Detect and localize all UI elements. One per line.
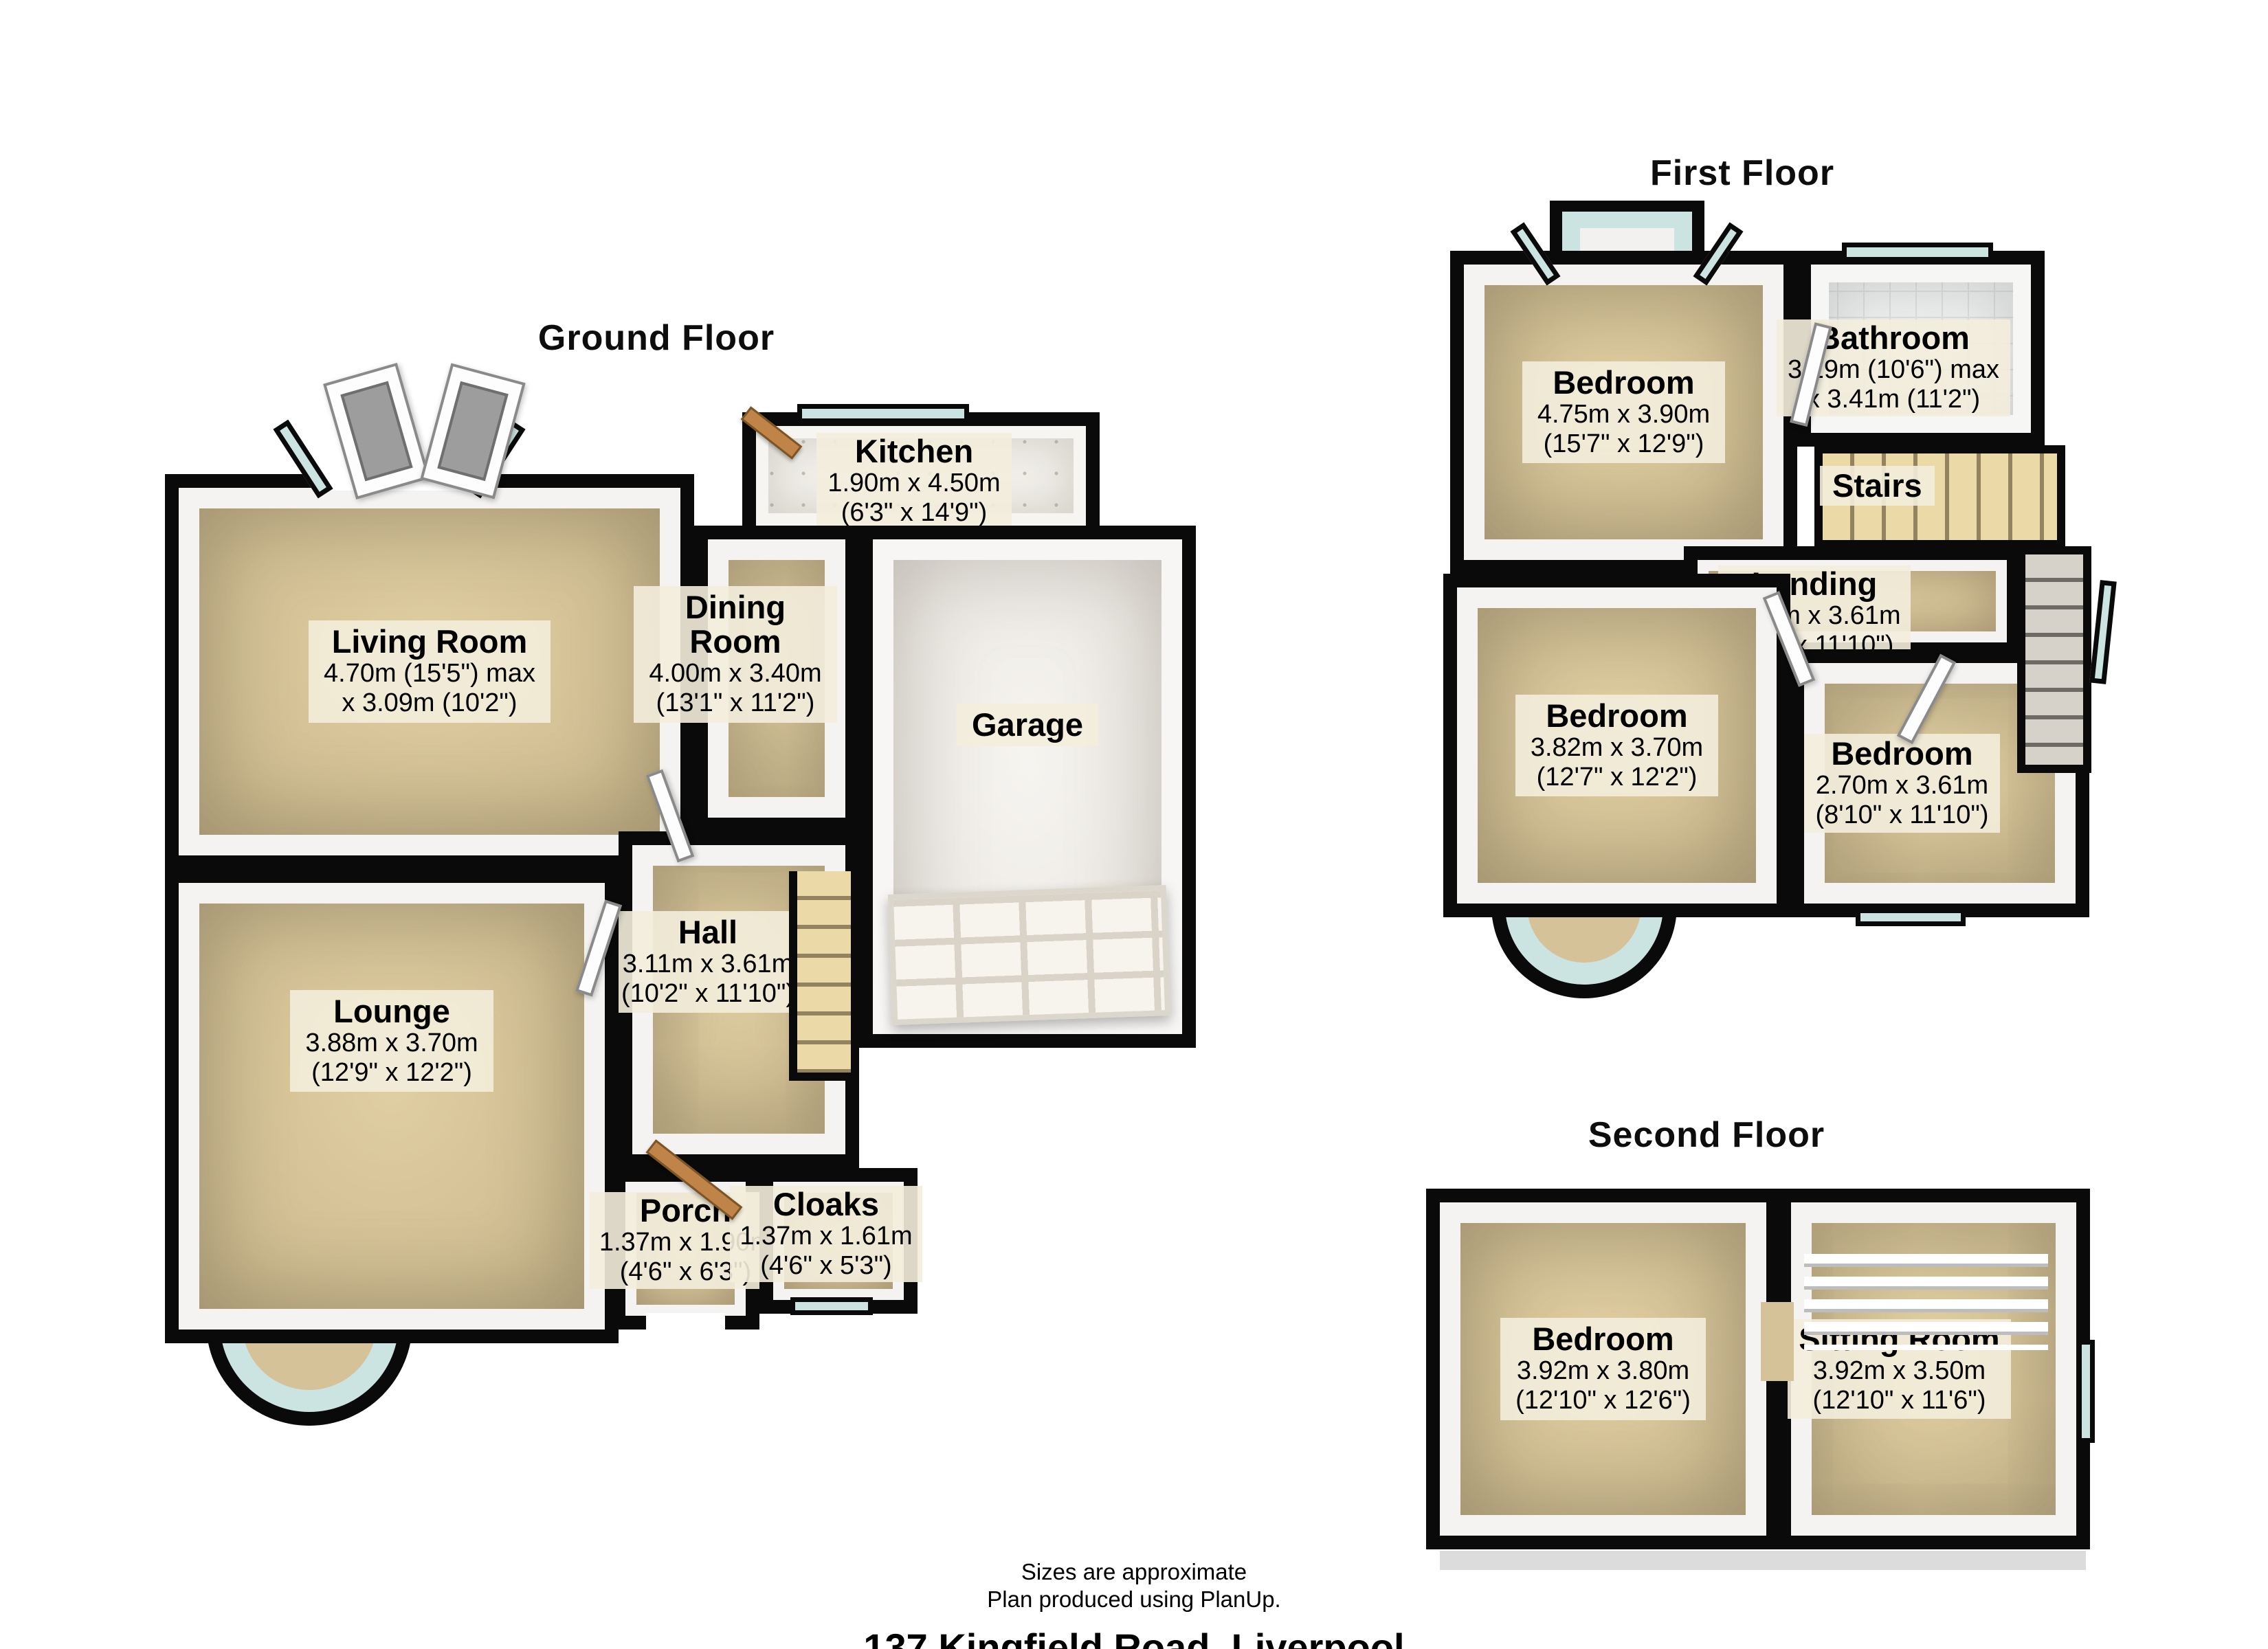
bedroom-3-dim2: (8'10" x 11'10"): [1815, 800, 1988, 830]
dining-room-dim1: 4.00m x 3.40m: [649, 659, 821, 688]
second-bedroom-label: Bedroom 3.92m x 3.80m (12'10" x 12'6"): [1500, 1318, 1706, 1420]
stairwell-lower-flight: [2017, 546, 2091, 773]
lounge-name: Lounge: [305, 994, 478, 1029]
bedroom-3-name: Bedroom: [1815, 737, 1988, 771]
room-dining-room: Dining Room 4.00m x 3.40m (13'1" x 11'2"…: [694, 526, 859, 831]
kitchen-dim2: (6'3" x 14'9"): [827, 498, 1000, 528]
kitchen-window: [797, 404, 969, 423]
second-bedroom-dim1: 3.92m x 3.80m: [1515, 1356, 1691, 1386]
room-bathroom: Bathroom 3.19m (10'6") max x 3.41m (11'2…: [1797, 251, 2045, 447]
footer-address: 137 Kingfield Road, Liverpool: [0, 1625, 2268, 1649]
room-living-room: Living Room 4.70m (15'5") max x 3.09m (1…: [165, 474, 694, 869]
bedroom-1-name: Bedroom: [1537, 366, 1710, 400]
footer-produced-note: Plan produced using PlanUp.: [0, 1586, 2268, 1613]
bedroom-1-dim1: 4.75m x 3.90m: [1537, 400, 1710, 429]
room-sitting-room: Sitting Room 3.92m x 3.50m (12'10" x 11'…: [1777, 1189, 2090, 1549]
bedroom-2-label: Bedroom 3.82m x 3.70m (12'7" x 12'2"): [1515, 695, 1718, 796]
footer: Sizes are approximate Plan produced usin…: [0, 1558, 2268, 1649]
room-bedroom-1: Bedroom 4.75m x 3.90m (15'7" x 12'9"): [1450, 251, 1797, 574]
living-room-name: Living Room: [324, 625, 535, 659]
cloaks-label: Cloaks 1.37m x 1.61m (4'6" x 5'3"): [730, 1186, 922, 1282]
bedroom-2-bay-window: [1491, 906, 1677, 998]
room-cloaks: Cloaks 1.37m x 1.61m (4'6" x 5'3"): [759, 1168, 918, 1314]
dining-room-dim2: (13'1" x 11'2"): [649, 688, 821, 718]
sitting-room-window: [2077, 1340, 2095, 1443]
kitchen-label: Kitchen 1.90m x 4.50m (6'3" x 14'9"): [816, 433, 1011, 529]
second-floor-title: Second Floor: [1588, 1114, 1825, 1156]
dining-room-label: Dining Room 4.00m x 3.40m (13'1" x 11'2"…: [634, 586, 836, 722]
porch-entrance-opening: [646, 1313, 725, 1331]
cloaks-window: [790, 1297, 873, 1315]
second-bedroom-name: Bedroom: [1515, 1322, 1691, 1356]
footer-sizes-note: Sizes are approximate: [0, 1558, 2268, 1586]
garage-name: Garage: [972, 708, 1083, 742]
lounge-label: Lounge 3.88m x 3.70m (12'9" x 12'2"): [290, 990, 493, 1092]
room-second-bedroom: Bedroom 3.92m x 3.80m (12'10" x 12'6"): [1426, 1189, 1780, 1549]
garage-door: [888, 885, 1170, 1025]
stairwell-window: [2089, 580, 2117, 684]
garage-label: Garage: [957, 704, 1098, 746]
room-kitchen: Kitchen 1.90m x 4.50m (6'3" x 14'9"): [742, 412, 1100, 539]
cloaks-dim1: 1.37m x 1.61m: [740, 1222, 912, 1251]
ground-floor-title: Ground Floor: [538, 317, 775, 359]
french-door-left-glass: [340, 381, 412, 482]
room-lounge: Lounge 3.88m x 3.70m (12'9" x 12'2"): [165, 869, 619, 1343]
living-room-dim2: x 3.09m (10'2"): [324, 688, 535, 718]
bedroom-2-dim1: 3.82m x 3.70m: [1531, 733, 1703, 763]
bedroom-1-dim2: (15'7" x 12'9"): [1537, 429, 1710, 459]
living-room-dim1: 4.70m (15'5") max: [324, 659, 535, 688]
second-floor-door-opening: [1761, 1302, 1794, 1381]
room-bedroom-2: Bedroom 3.82m x 3.70m (12'7" x 12'2"): [1443, 574, 1790, 917]
bedroom-3-dim1: 2.70m x 3.61m: [1815, 771, 1988, 800]
kitchen-dim1: 1.90m x 4.50m: [827, 469, 1000, 498]
stairs-name: Stairs: [1832, 469, 1922, 503]
lounge-dim1: 3.88m x 3.70m: [305, 1029, 478, 1058]
bedroom-2-name: Bedroom: [1531, 699, 1703, 733]
hall-stairs: [789, 871, 859, 1081]
hall-dim1: 3.11m x 3.61m: [621, 950, 794, 979]
lounge-dim2: (12'9" x 12'2"): [305, 1058, 478, 1088]
bathroom-dim2: x 3.41m (11'2"): [1788, 385, 1999, 414]
bedroom-3-label: Bedroom 2.70m x 3.61m (8'10" x 11'10"): [1804, 734, 1999, 833]
sitting-room-dim2: (12'10" x 11'6"): [1799, 1386, 1999, 1415]
hall-dim2: (10'2" x 11'10"): [621, 979, 794, 1009]
sitting-room-shelf: [1804, 1254, 2048, 1350]
hall-name: Hall: [621, 915, 794, 950]
stairs-label: Stairs: [1820, 466, 1935, 506]
living-room-label: Living Room 4.70m (15'5") max x 3.09m (1…: [309, 620, 551, 722]
kitchen-name: Kitchen: [827, 434, 1000, 469]
dining-room-name: Dining Room: [649, 590, 821, 659]
bedroom-1-label: Bedroom 4.75m x 3.90m (15'7" x 12'9"): [1522, 361, 1725, 463]
bathroom-window: [1842, 243, 1993, 262]
sitting-room-dim1: 3.92m x 3.50m: [1799, 1356, 1999, 1386]
first-floor-title: First Floor: [1650, 153, 1834, 194]
bedroom-3-window: [1856, 908, 1966, 926]
cloaks-dim2: (4'6" x 5'3"): [740, 1251, 912, 1281]
cloaks-name: Cloaks: [740, 1187, 912, 1222]
french-door-right-glass: [437, 381, 508, 481]
bedroom-2-dim2: (12'7" x 12'2"): [1531, 763, 1703, 792]
hall-label: Hall 3.11m x 3.61m (10'2" x 11'10"): [606, 911, 810, 1013]
second-bedroom-dim2: (12'10" x 12'6"): [1515, 1386, 1691, 1415]
